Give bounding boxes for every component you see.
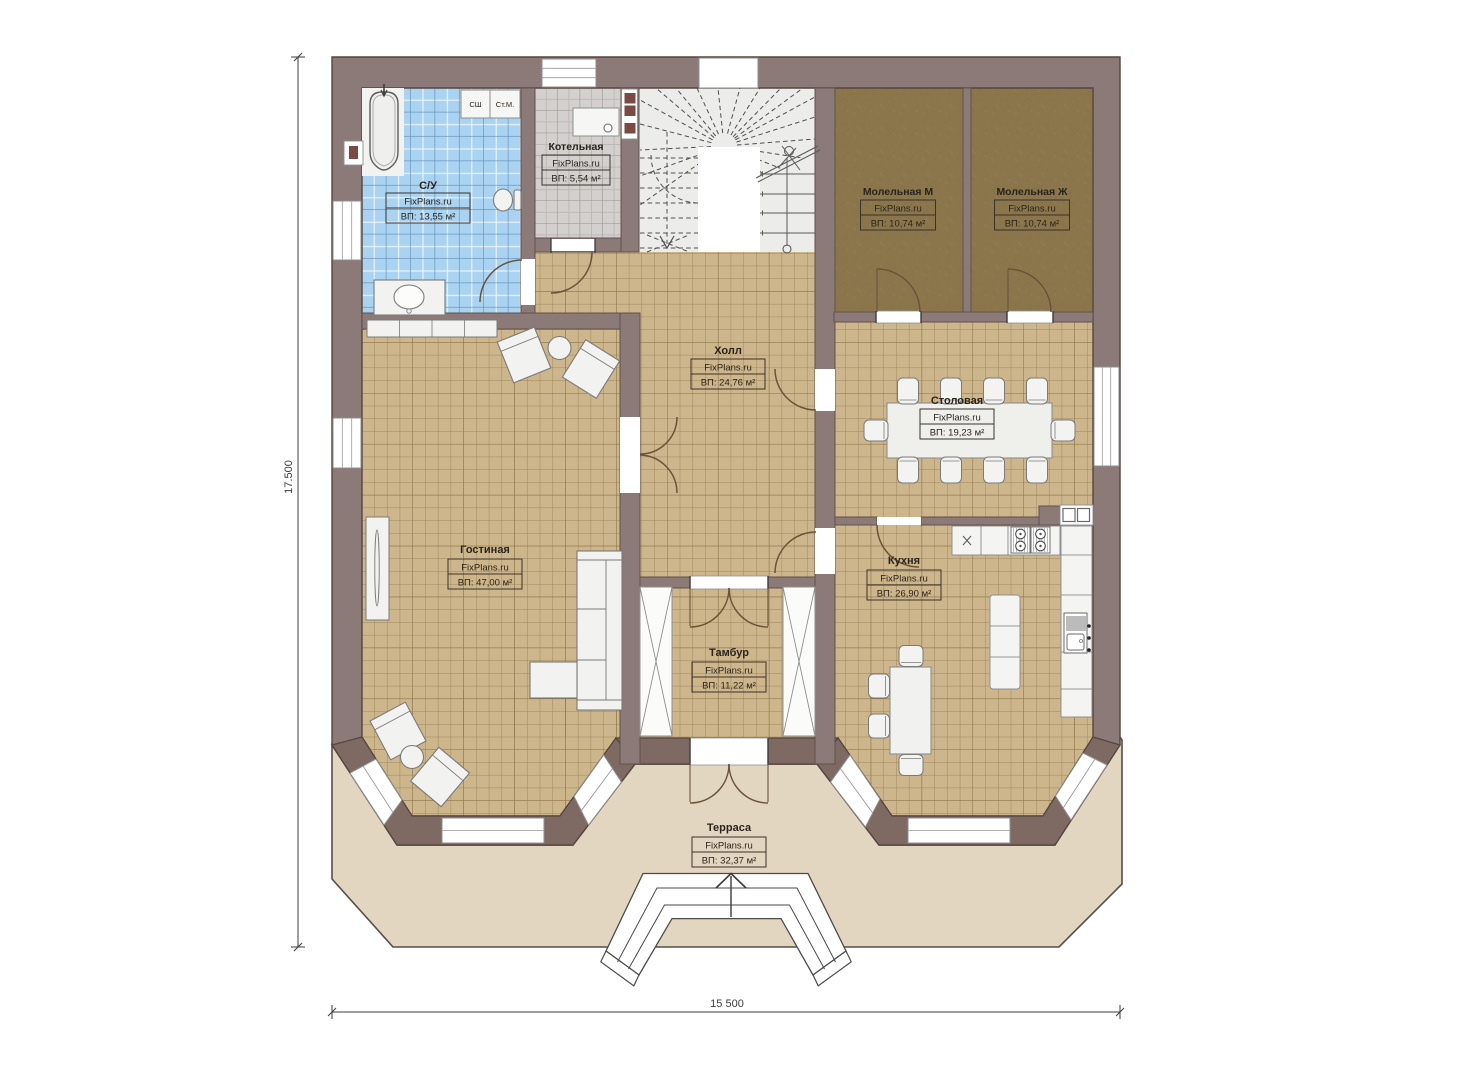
svg-text:FixPlans.ru: FixPlans.ru [880, 574, 928, 585]
svg-text:ВП: 32,37 м²: ВП: 32,37 м² [702, 856, 757, 867]
svg-text:FixPlans.ru: FixPlans.ru [933, 413, 981, 424]
svg-text:FixPlans.ru: FixPlans.ru [404, 197, 452, 208]
svg-text:ВП: 47,00 м²: ВП: 47,00 м² [458, 578, 513, 589]
svg-text:FixPlans.ru: FixPlans.ru [552, 159, 600, 170]
svg-text:ВП: 24,76 м²: ВП: 24,76 м² [701, 378, 756, 389]
svg-text:Тамбур: Тамбур [709, 647, 749, 659]
svg-text:FixPlans.ru: FixPlans.ru [461, 563, 509, 574]
svg-text:ВП: 13,55 м²: ВП: 13,55 м² [401, 212, 456, 223]
svg-text:Молельная М: Молельная М [863, 186, 934, 198]
svg-text:ВП: 10,74 м²: ВП: 10,74 м² [871, 219, 926, 230]
svg-text:FixPlans.ru: FixPlans.ru [874, 204, 922, 215]
svg-text:ВП: 10,74 м²: ВП: 10,74 м² [1005, 219, 1060, 230]
svg-text:FixPlans.ru: FixPlans.ru [705, 841, 753, 852]
svg-text:FixPlans.ru: FixPlans.ru [705, 666, 753, 677]
svg-text:С/У: С/У [419, 180, 437, 192]
svg-text:СШ: СШ [469, 100, 481, 109]
svg-text:FixPlans.ru: FixPlans.ru [704, 363, 752, 374]
svg-text:ВП: 19,23 м²: ВП: 19,23 м² [930, 428, 985, 439]
svg-text:Молельная Ж: Молельная Ж [996, 186, 1068, 198]
svg-text:Гостиная: Гостиная [460, 544, 510, 556]
svg-text:Кухня: Кухня [888, 555, 920, 567]
svg-text:Холл: Холл [714, 345, 742, 357]
svg-text:15 500: 15 500 [710, 998, 744, 1010]
svg-text:Столовая: Столовая [931, 395, 983, 407]
svg-text:ВП: 26,90 м²: ВП: 26,90 м² [877, 589, 932, 600]
svg-text:17.500: 17.500 [283, 460, 295, 494]
svg-text:Котельная: Котельная [549, 141, 604, 153]
svg-text:ВП: 5,54 м²: ВП: 5,54 м² [551, 174, 600, 185]
svg-text:Ст.М.: Ст.М. [496, 100, 514, 109]
svg-text:FixPlans.ru: FixPlans.ru [1008, 204, 1056, 215]
svg-text:ВП: 11,22 м²: ВП: 11,22 м² [702, 681, 756, 692]
svg-text:Терраса: Терраса [707, 822, 752, 834]
